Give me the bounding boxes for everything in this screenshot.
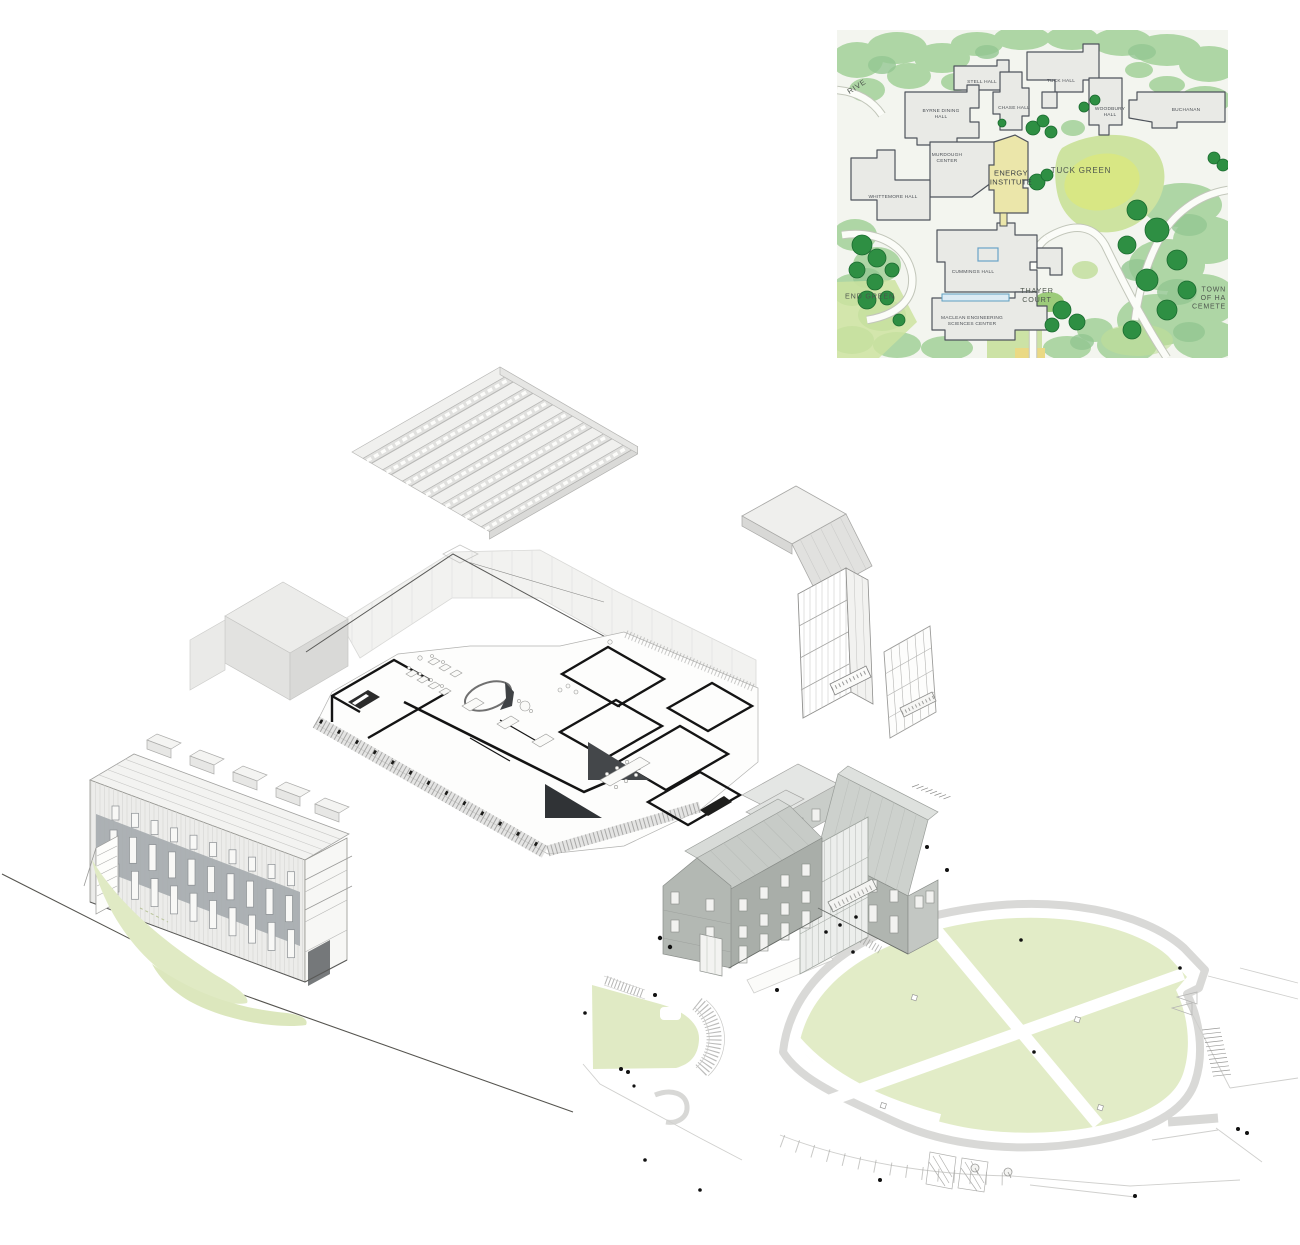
ghost-slab-left: [190, 620, 225, 690]
campus-map-graphic: [837, 30, 1228, 358]
blue-walkway: [942, 294, 1009, 301]
bay-window: [700, 934, 722, 976]
terrace-lawn: [592, 985, 699, 1069]
curtain-wall-panel: [884, 626, 936, 738]
campus-map-inset: RIVESTELL HALLTUCK HALLBYRNE DINING HALL…: [837, 30, 1228, 358]
terrace-notch: [660, 1007, 681, 1020]
site-hatch-ticks: [912, 784, 951, 799]
lab-building: [84, 734, 352, 1026]
parking-hatch-islands: [926, 1152, 988, 1192]
architectural-sheet: RIVESTELL HALLTUCK HALLBYRNE DINING HALL…: [0, 0, 1300, 1245]
byrne-dining-hall-footprint: [905, 85, 979, 145]
tower-front-face: [798, 568, 851, 718]
road-stub: [1168, 1118, 1218, 1122]
axon-svg: [0, 340, 1300, 1245]
exploded-axonometric-drawing: [0, 340, 1300, 1245]
sawtooth-roof-canopy: [352, 367, 638, 539]
cutaway-floor-plan: [316, 632, 758, 854]
hook-path: [655, 1092, 687, 1122]
energy-institute-footprint: [989, 135, 1028, 213]
east-parking-ticks: [1202, 1028, 1231, 1076]
stair-tower: [742, 486, 873, 722]
